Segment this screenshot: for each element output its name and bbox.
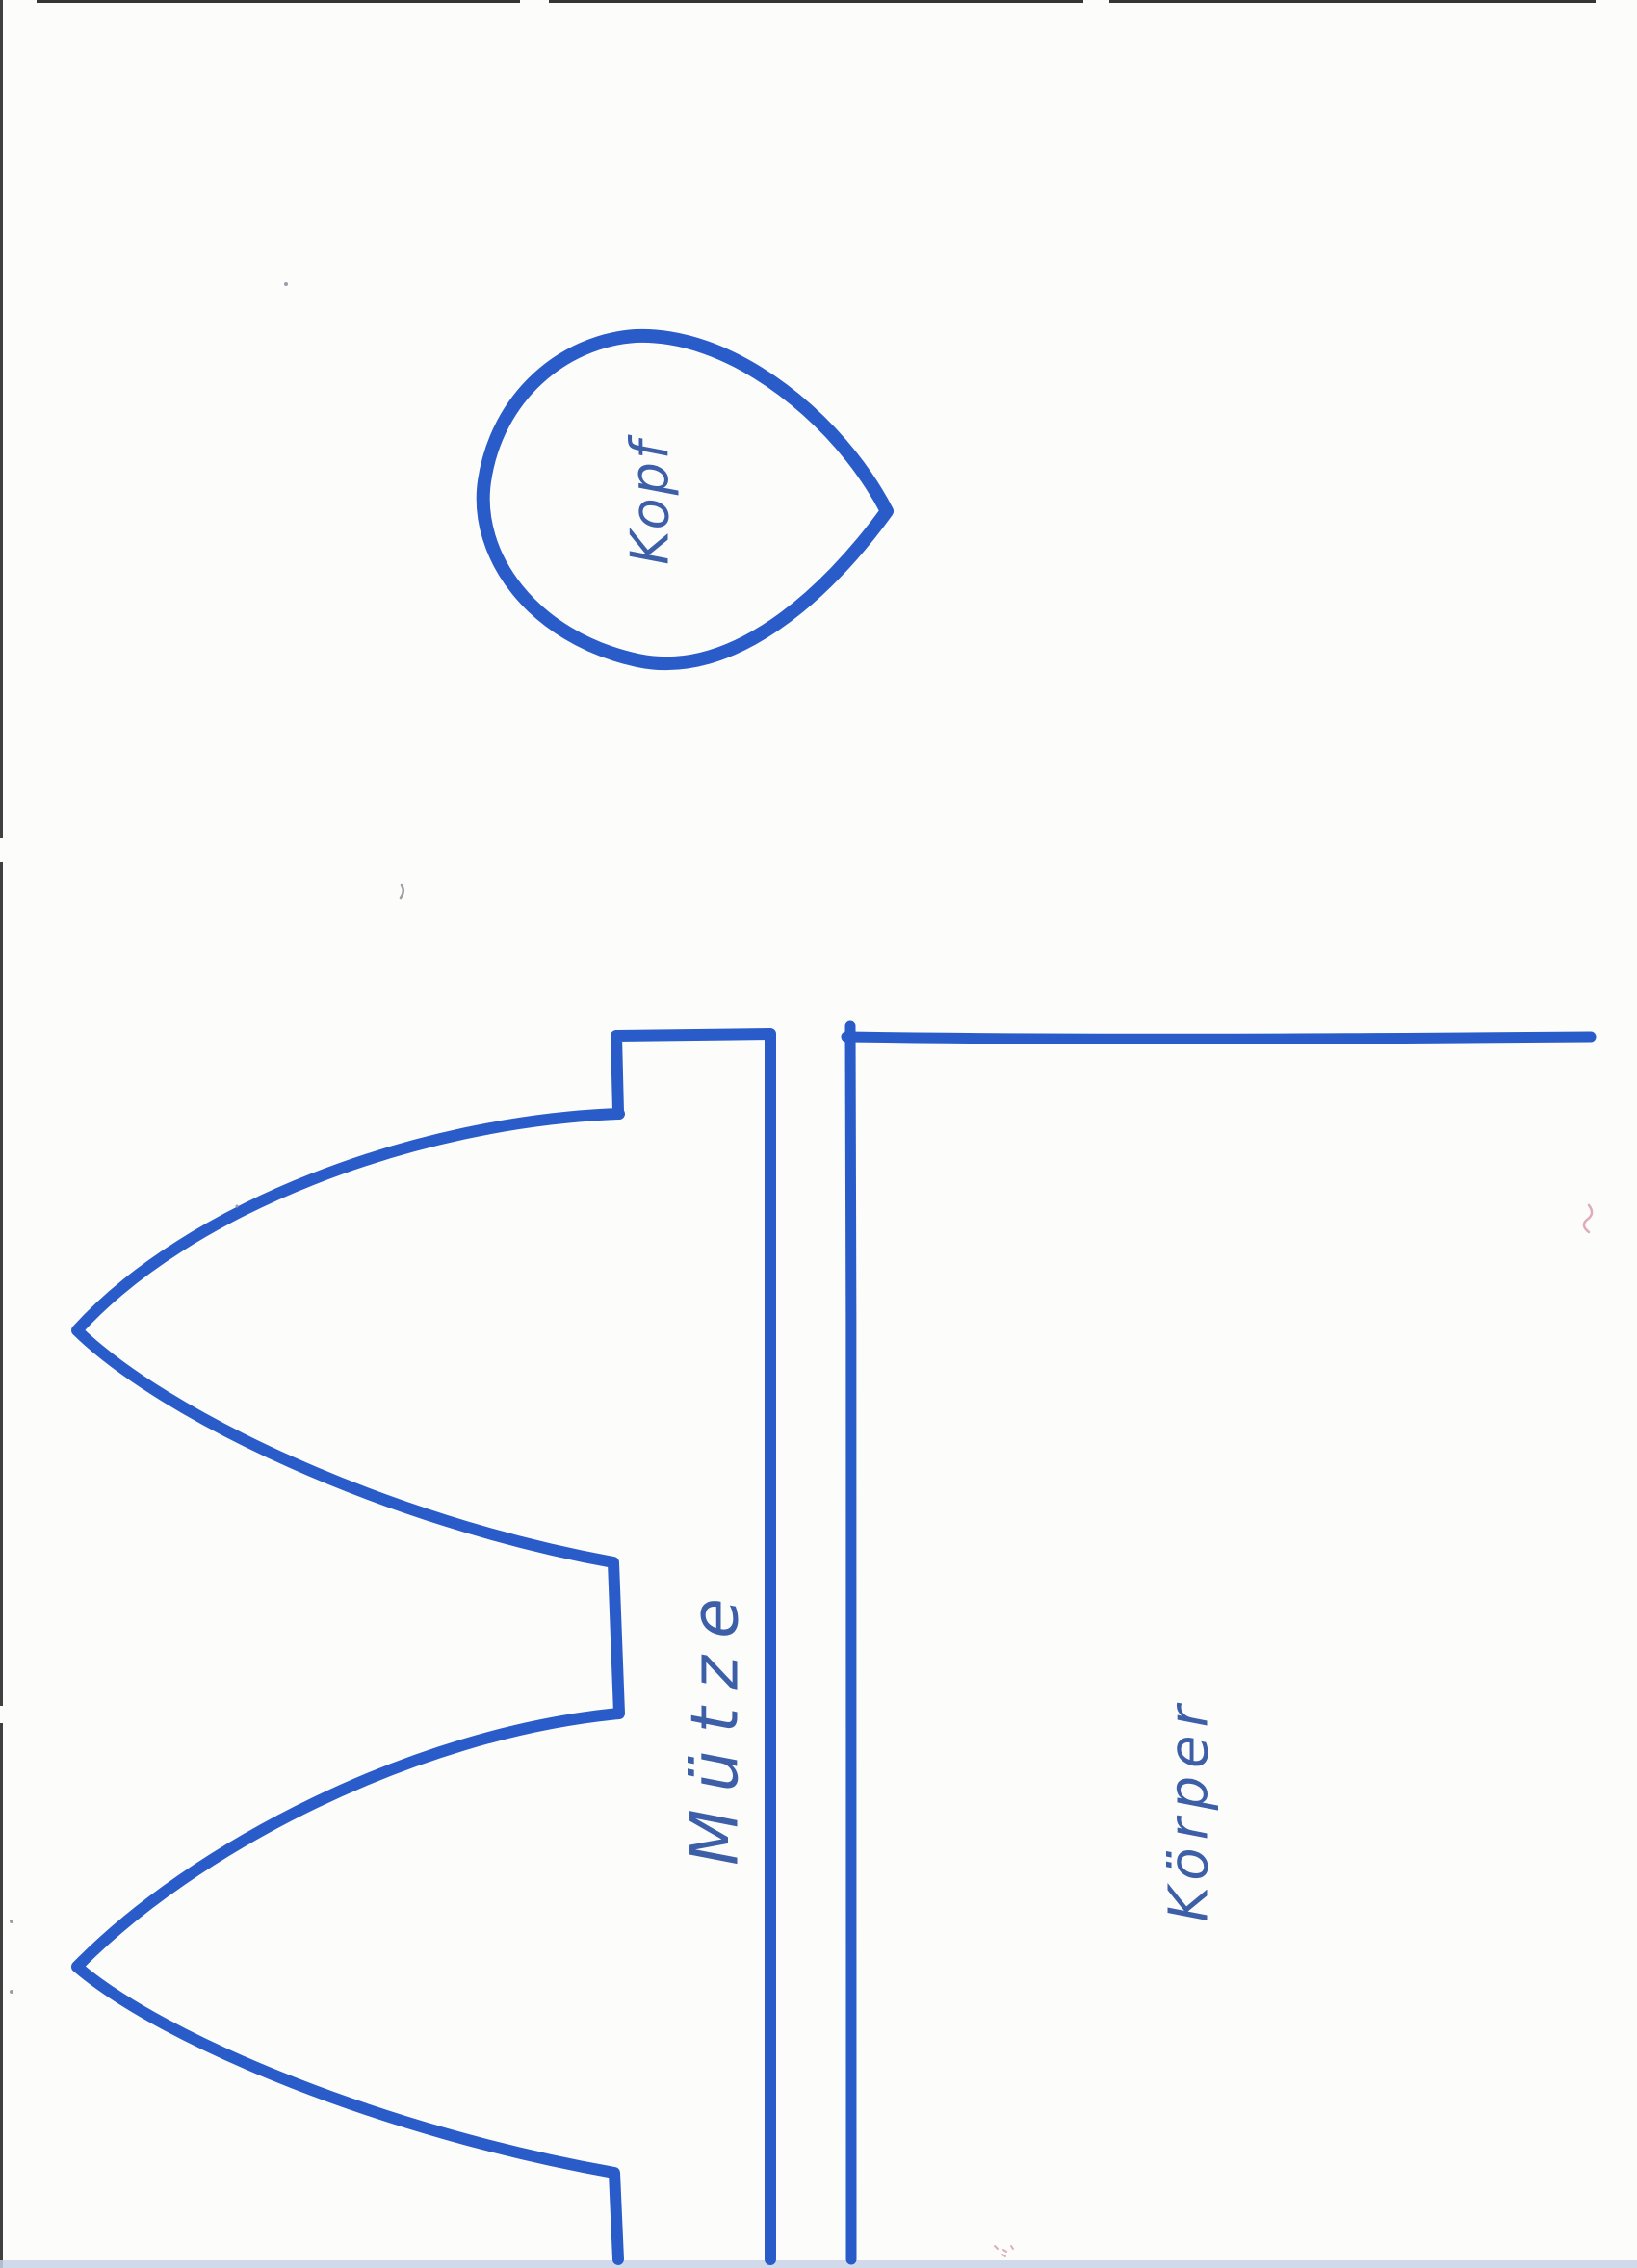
gray-speck-dot xyxy=(10,1920,13,1923)
hat-label: Mütze xyxy=(678,1581,754,1866)
gray-speck-dot xyxy=(284,282,288,286)
paper-background xyxy=(0,0,1637,2268)
head-label: Kopf xyxy=(620,434,681,565)
pattern-drawing: Kopf Mütze Körper xyxy=(0,0,1637,2268)
body-top-edge xyxy=(846,1037,1591,1039)
gray-speck-dot xyxy=(236,1205,239,1208)
gray-speck-dot xyxy=(10,1990,13,1994)
body-left-edge xyxy=(850,1026,851,2259)
body-label: Körper xyxy=(1158,1697,1221,1921)
scanned-pattern-page: Kopf Mütze Körper xyxy=(0,0,1637,2268)
bottom-edge-scan-band xyxy=(0,2260,1637,2268)
